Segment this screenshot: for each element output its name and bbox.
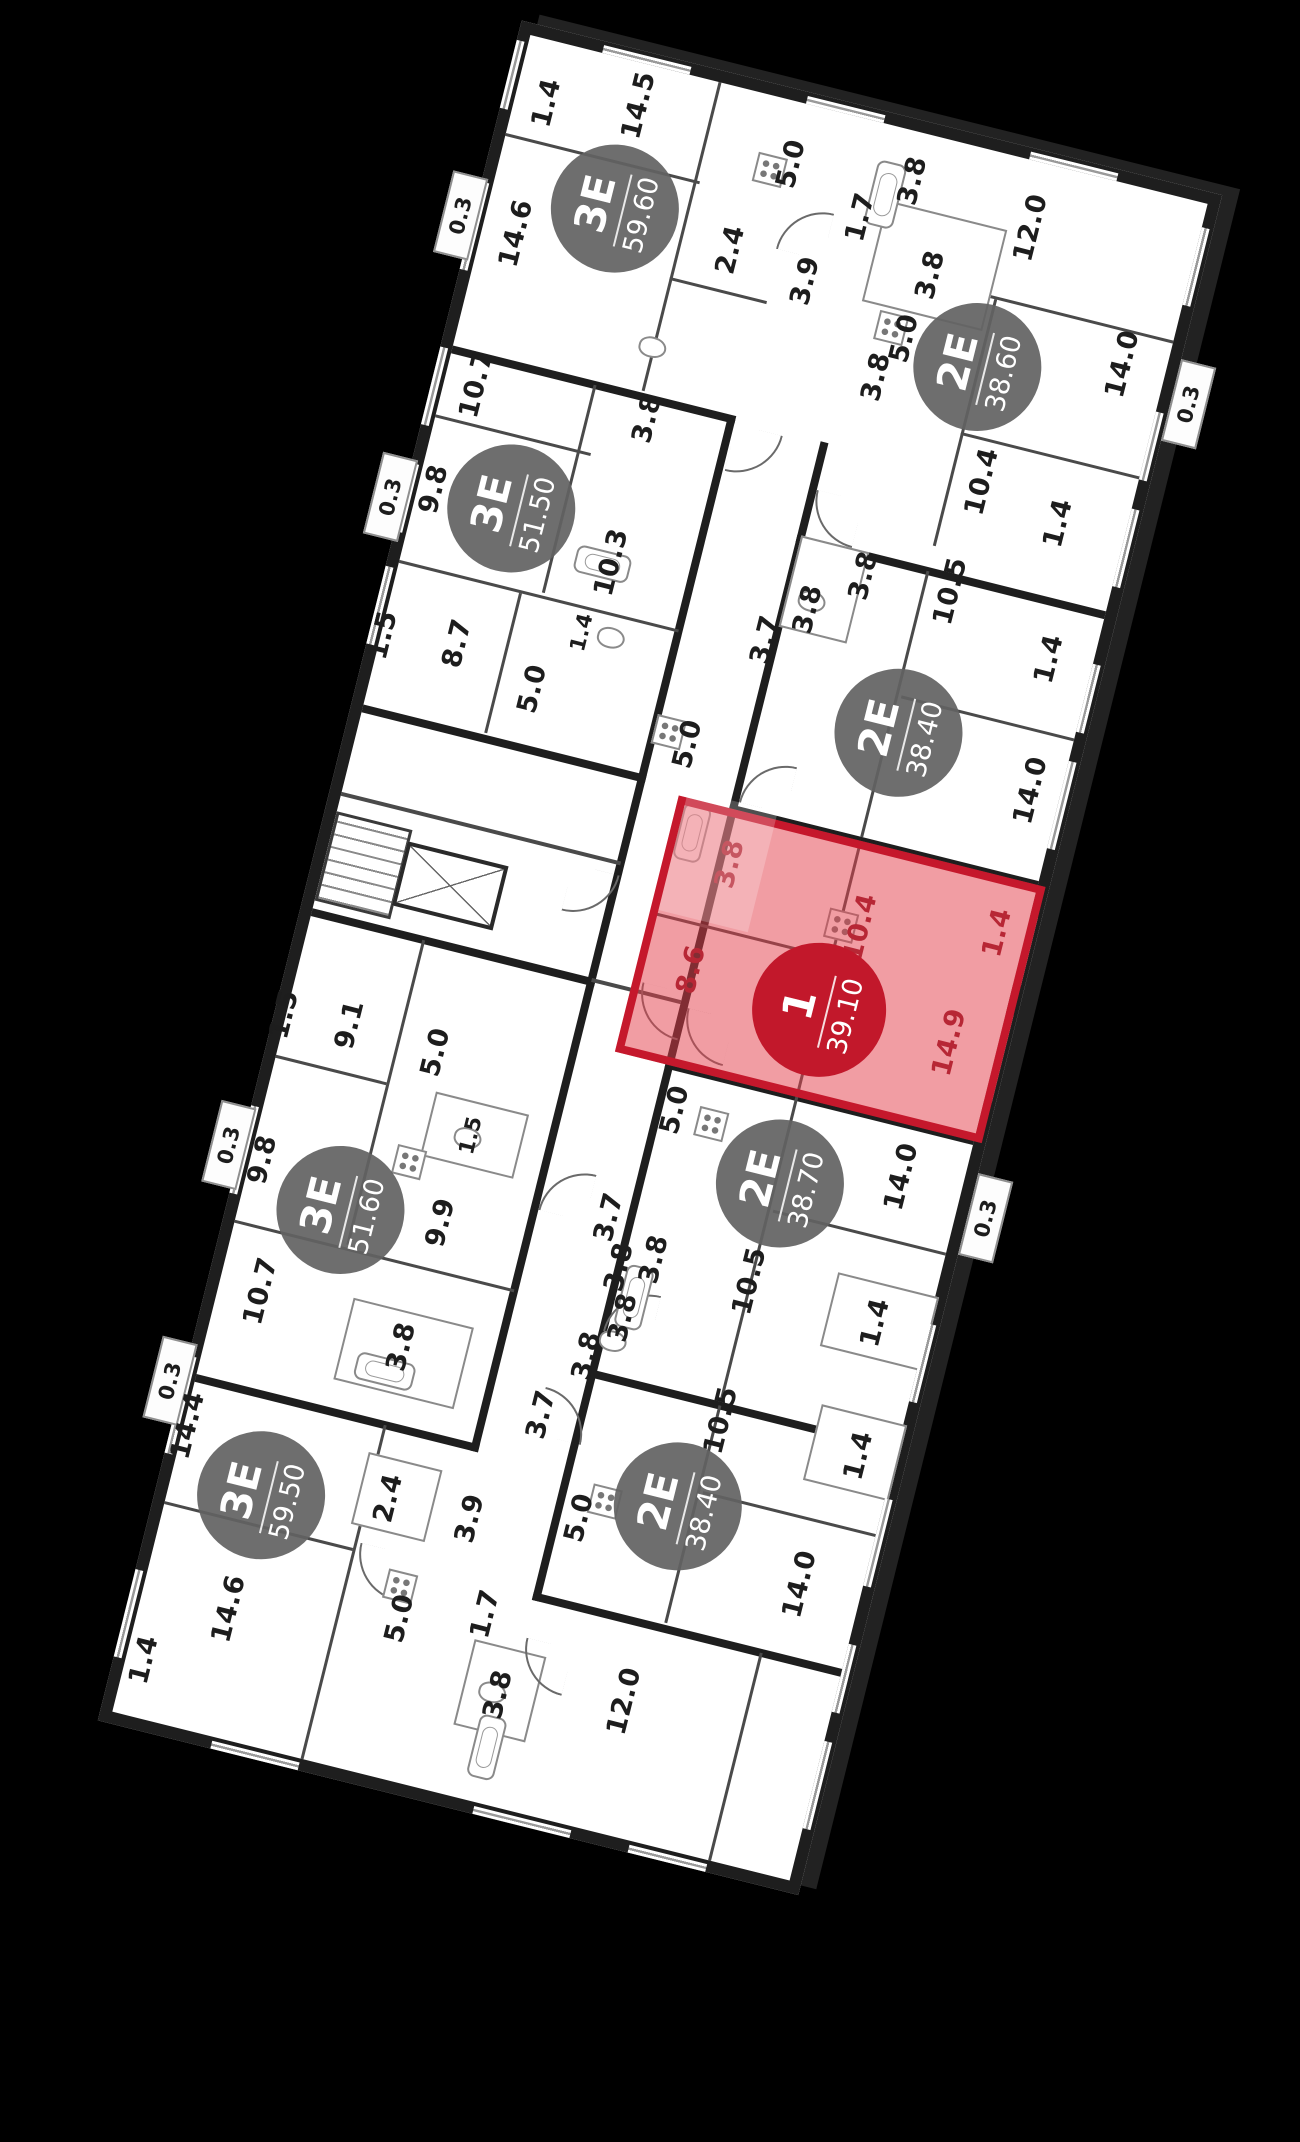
unit-area-label: 59.50 <box>265 1461 310 1543</box>
unit-area-label: 59.60 <box>619 174 664 256</box>
selected-unit-bath-tint <box>658 790 777 933</box>
unit-type-label: 3Е <box>464 470 519 536</box>
unit-type-label: 3Е <box>214 1457 269 1523</box>
unit-area-label: 39.10 <box>823 976 868 1058</box>
unit-type-label: 3Е <box>568 171 623 237</box>
floorplan-viewport: 1.414.514.65.03.82.43.91.73Е59.6012.010.… <box>0 0 1300 2142</box>
unit-type-label: 2Е <box>733 1145 788 1211</box>
unit-type-label: 3Е <box>294 1172 349 1238</box>
unit-area-label: 38.40 <box>682 1472 727 1554</box>
unit-area-label: 38.70 <box>784 1149 829 1231</box>
unit-area-label: 51.60 <box>345 1176 390 1258</box>
unit-area-label: 51.50 <box>515 474 560 556</box>
unit-type-label: 1 <box>776 986 824 1025</box>
unit-type-label: 2Е <box>852 695 907 761</box>
unit-type-label: 2Е <box>631 1468 686 1534</box>
unit-area-label: 38.40 <box>903 699 948 781</box>
unit-area-label: 38.60 <box>982 333 1027 415</box>
unit-type-label: 2Е <box>931 329 986 395</box>
floorplan-rotated-container: 1.414.514.65.03.82.43.91.73Е59.6012.010.… <box>40 0 1281 2009</box>
